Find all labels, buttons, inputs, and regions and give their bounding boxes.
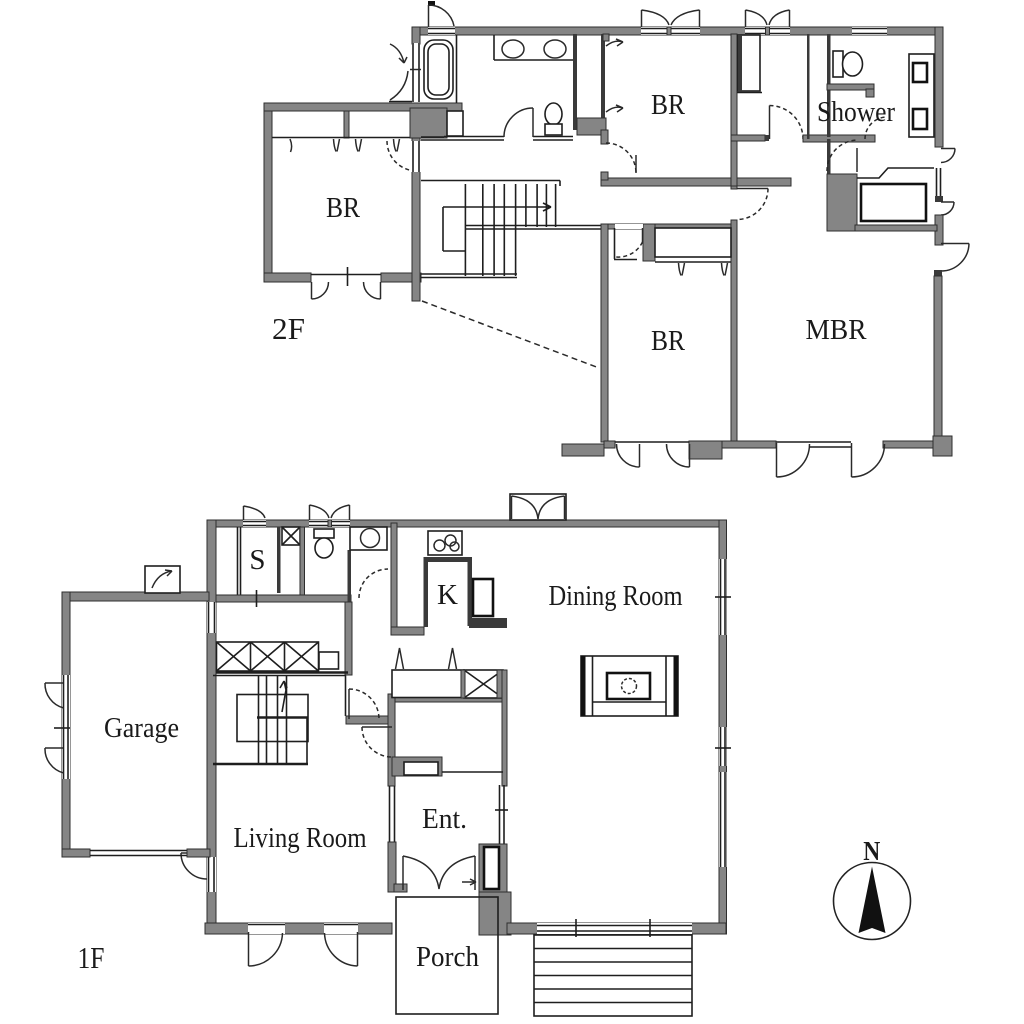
- svg-text:2F: 2F: [272, 311, 305, 346]
- svg-text:N: N: [863, 836, 880, 866]
- svg-text:MBR: MBR: [806, 314, 868, 346]
- svg-text:S: S: [249, 544, 265, 576]
- svg-text:BR: BR: [651, 89, 686, 121]
- svg-text:Porch: Porch: [416, 941, 479, 973]
- svg-text:Shower: Shower: [817, 96, 895, 128]
- svg-text:1F: 1F: [78, 940, 105, 975]
- svg-text:Living Room: Living Room: [234, 822, 367, 854]
- svg-text:Ent.: Ent.: [422, 803, 467, 835]
- svg-text:Garage: Garage: [104, 712, 179, 744]
- svg-text:Dining Room: Dining Room: [549, 580, 683, 612]
- svg-text:K: K: [437, 579, 458, 611]
- svg-text:BR: BR: [651, 325, 686, 357]
- svg-text:BR: BR: [326, 192, 361, 224]
